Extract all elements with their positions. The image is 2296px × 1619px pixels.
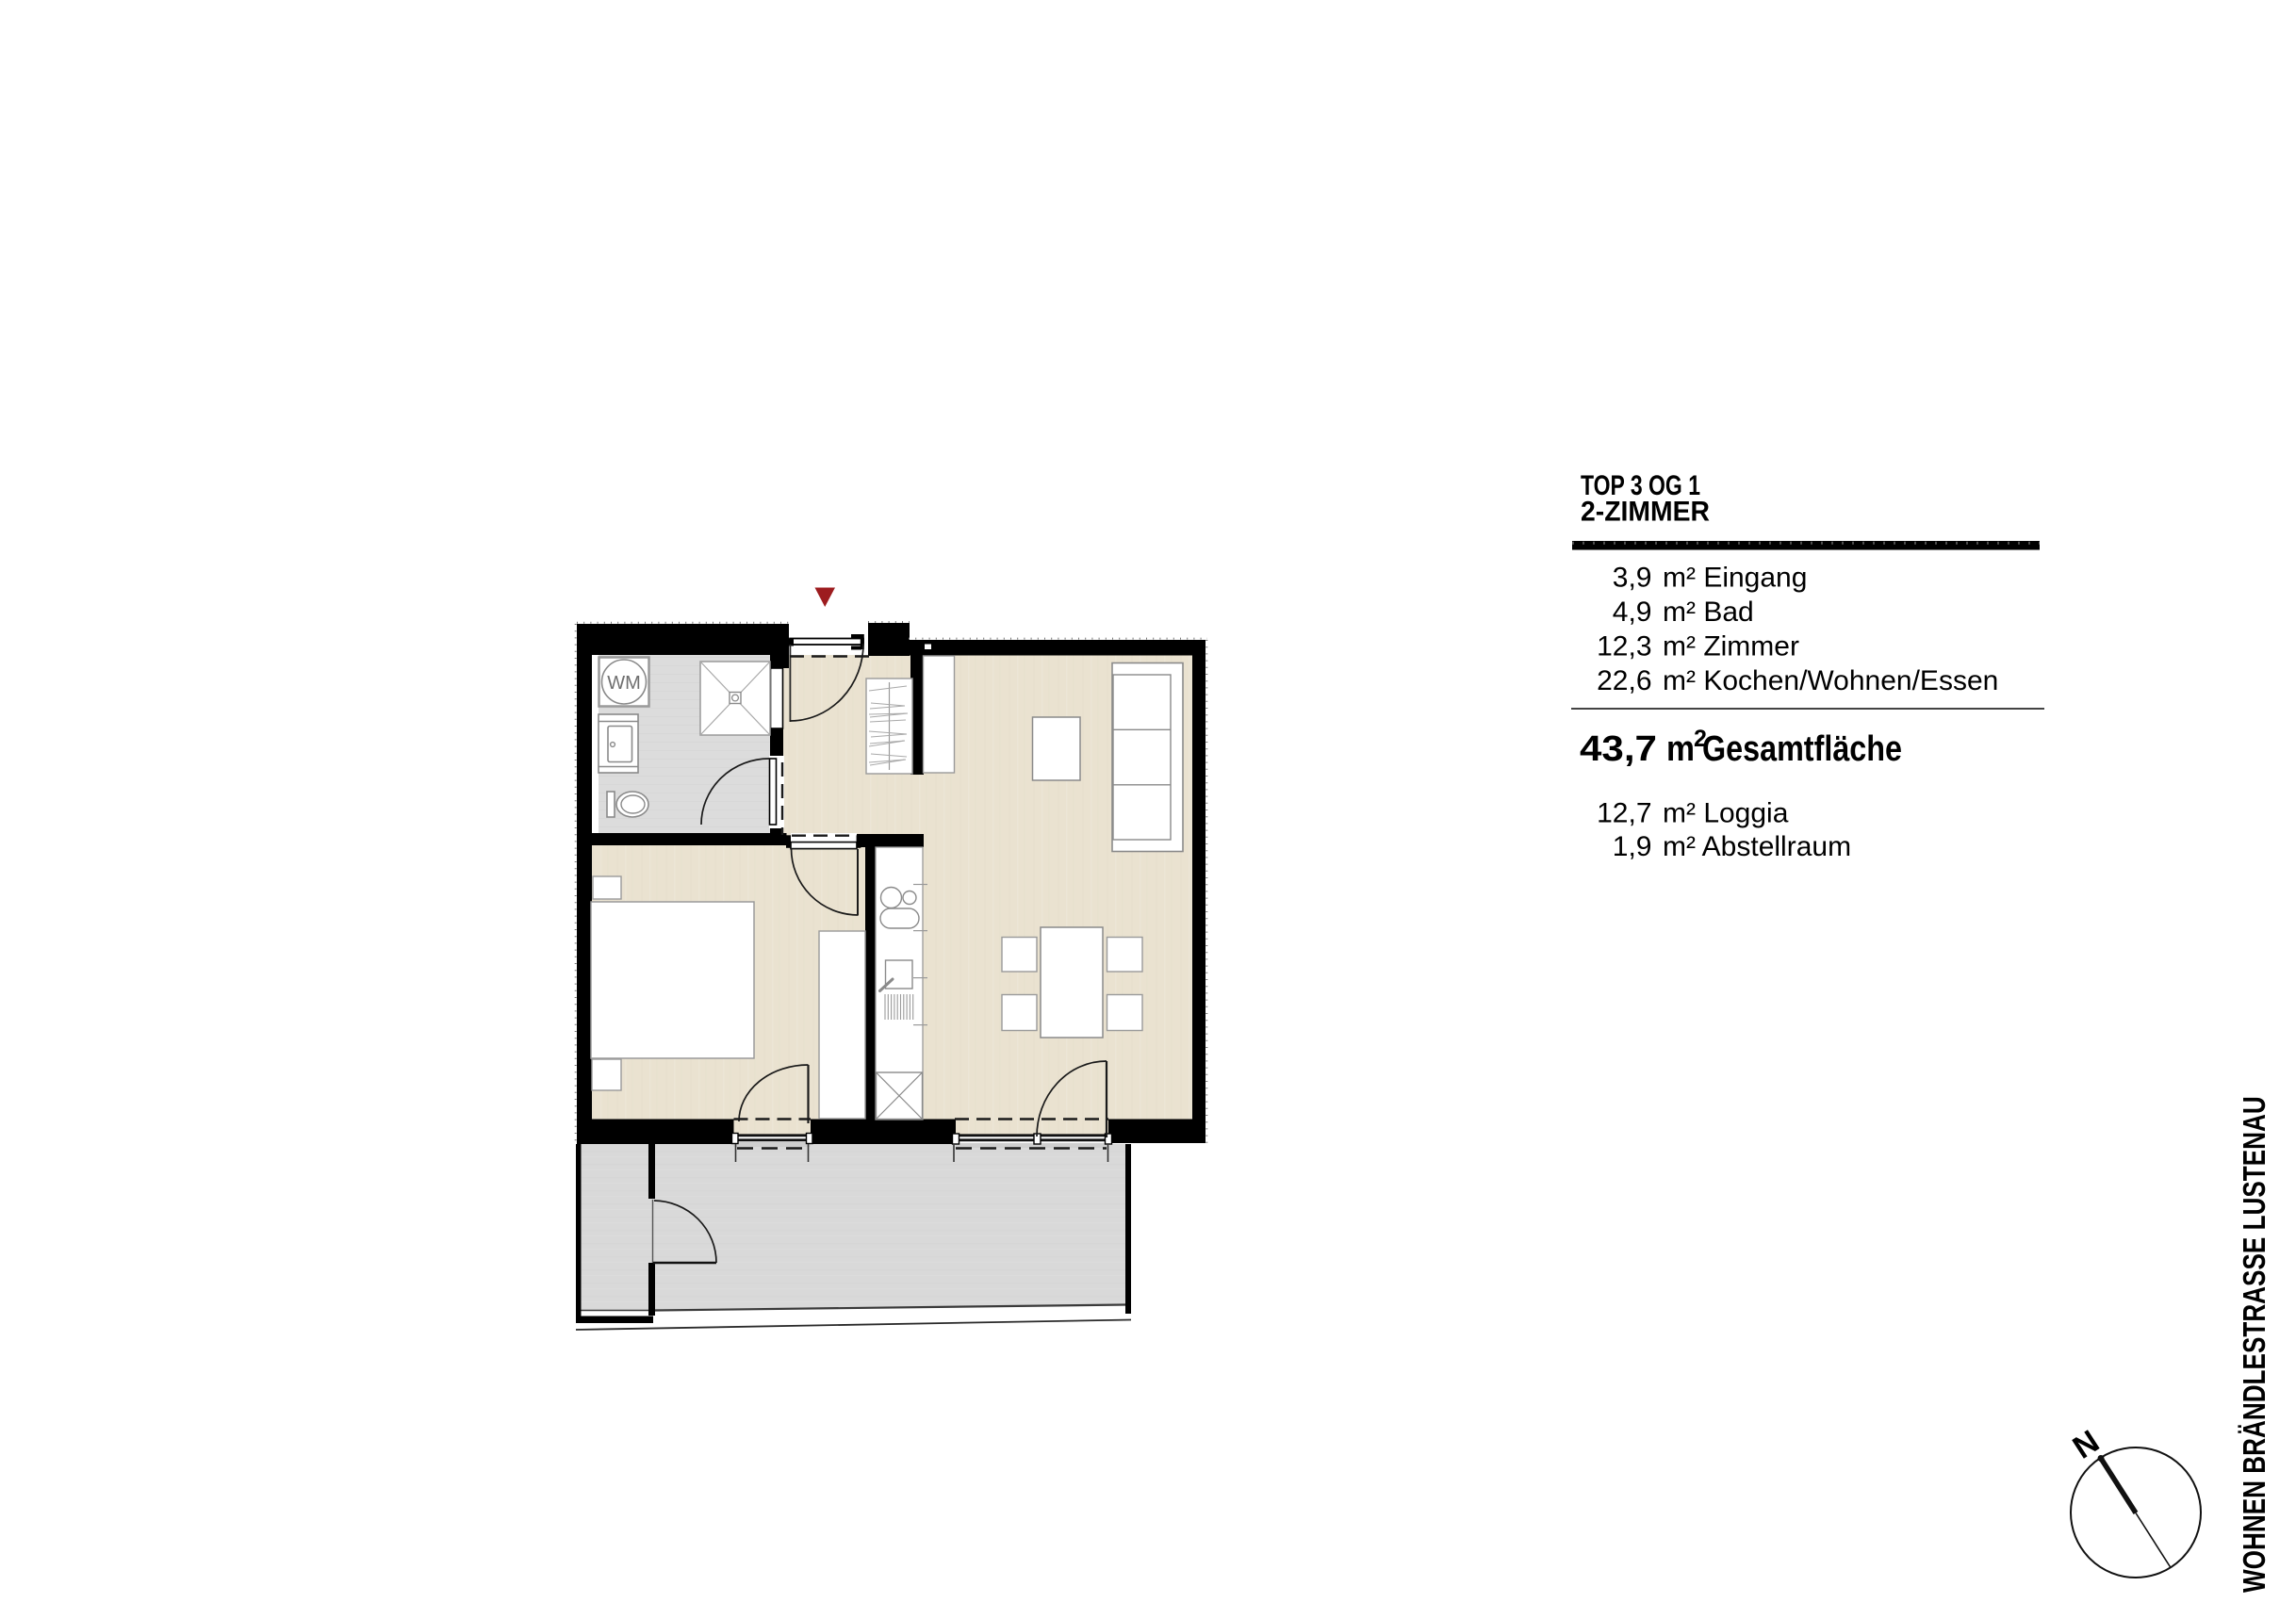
svg-text:WOHNEN BRÄNDLESTRASSE LUSTENAU: WOHNEN BRÄNDLESTRASSE LUSTENAU xyxy=(2238,1096,2272,1593)
svg-text:1,9: 1,9 xyxy=(1613,831,1652,862)
svg-text:4,9: 4,9 xyxy=(1613,597,1652,628)
svg-text:m² Bad: m² Bad xyxy=(1663,597,1754,628)
svg-text:m: m xyxy=(1666,729,1695,769)
svg-text:3,9: 3,9 xyxy=(1613,563,1652,594)
svg-text:m² Loggia: m² Loggia xyxy=(1663,798,1789,829)
svg-text:WM: WM xyxy=(607,673,641,694)
svg-text:m² Abstellraum: m² Abstellraum xyxy=(1663,831,1851,862)
svg-text:m² Kochen/Wohnen/Essen: m² Kochen/Wohnen/Essen xyxy=(1663,665,1998,696)
svg-text:12,3: 12,3 xyxy=(1597,631,1651,662)
svg-text:m² Eingang: m² Eingang xyxy=(1663,563,1807,594)
svg-text:22,6: 22,6 xyxy=(1597,665,1651,696)
svg-text:Gesamtfläche: Gesamtfläche xyxy=(1702,729,1902,769)
svg-text:43,7: 43,7 xyxy=(1580,729,1657,769)
svg-text:m² Zimmer: m² Zimmer xyxy=(1663,631,1799,662)
svg-text:2-ZIMMER: 2-ZIMMER xyxy=(1581,497,1710,528)
svg-text:12,7: 12,7 xyxy=(1597,798,1651,829)
